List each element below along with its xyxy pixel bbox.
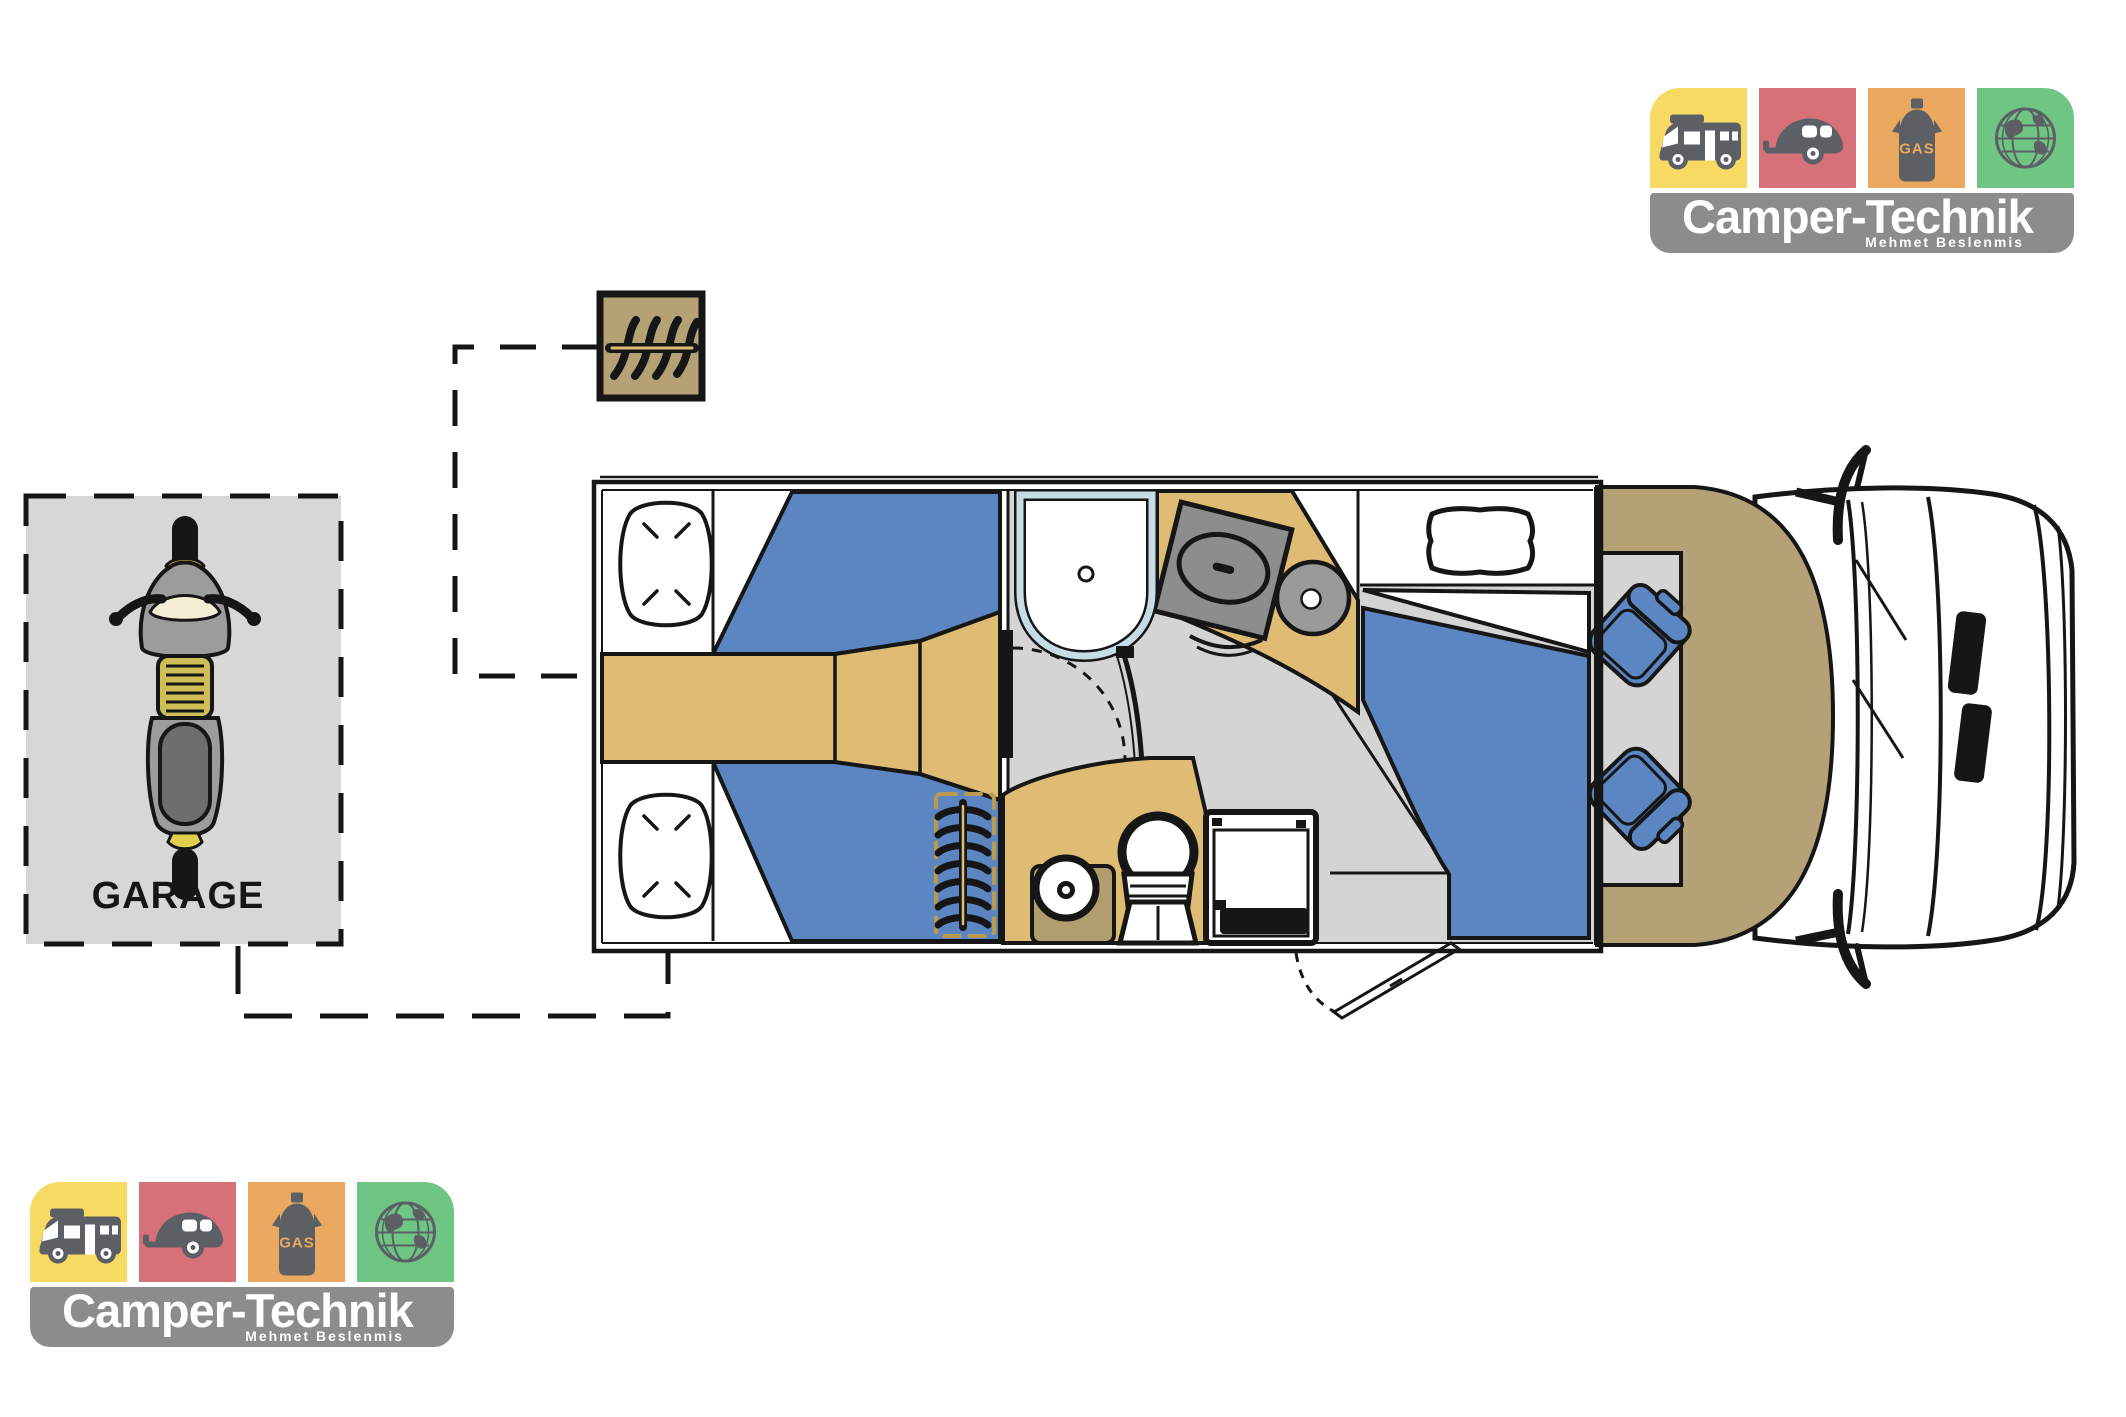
- dinette-table: [1429, 509, 1533, 574]
- gas-bottle-icon: GAS: [1868, 88, 1965, 188]
- logo-banner: Camper-Technik Mehmet Beslenmis: [30, 1287, 454, 1347]
- washbasin: [1032, 858, 1114, 943]
- logo-title: Camper-Technik: [30, 1287, 454, 1333]
- bed-pillow-bottom: [620, 795, 712, 918]
- camper-technik-logo-top: GAS Camper-Technik Mehmet Beslenmis: [1650, 88, 2074, 253]
- garage-box: GARAGE: [26, 496, 341, 944]
- rear-bedroom: [602, 491, 1000, 941]
- logo-banner: Camper-Technik Mehmet Beslenmis: [1650, 193, 2074, 253]
- caravan-icon: [139, 1182, 236, 1282]
- shower-cabin: [1020, 495, 1152, 656]
- garage-connector: [238, 946, 668, 1016]
- logo-tiles: GAS: [1650, 88, 2074, 188]
- motorhome-icon: [1650, 88, 1747, 188]
- roof-ladder-connector: [455, 347, 598, 676]
- cab-lounge: [1583, 487, 1833, 945]
- garage-label: GARAGE: [92, 875, 265, 917]
- logo-title: Camper-Technik: [1650, 193, 2074, 239]
- motorhome-icon: [30, 1182, 127, 1282]
- globe-icon: [1977, 88, 2074, 188]
- gas-bottle-icon: GAS: [248, 1182, 345, 1282]
- gas-label: GAS: [279, 1235, 315, 1252]
- camper-technik-logo-bottom: GAS Camper-Technik Mehmet Beslenmis: [30, 1182, 454, 1347]
- kitchen-stove: [1154, 502, 1292, 638]
- shower-drain: [1079, 567, 1093, 581]
- kitchen-sink: [1277, 562, 1349, 634]
- gas-label: GAS: [1899, 141, 1935, 158]
- globe-icon: [357, 1182, 454, 1282]
- entry-door: [1296, 943, 1459, 1018]
- roof-ladder-box: [600, 294, 702, 398]
- toilet: [1120, 816, 1196, 943]
- fridge: [1206, 812, 1316, 943]
- bed-pillow-top: [620, 503, 712, 626]
- logo-tiles: GAS: [30, 1182, 454, 1282]
- caravan-icon: [1759, 88, 1856, 188]
- coach-interior: [598, 486, 1597, 947]
